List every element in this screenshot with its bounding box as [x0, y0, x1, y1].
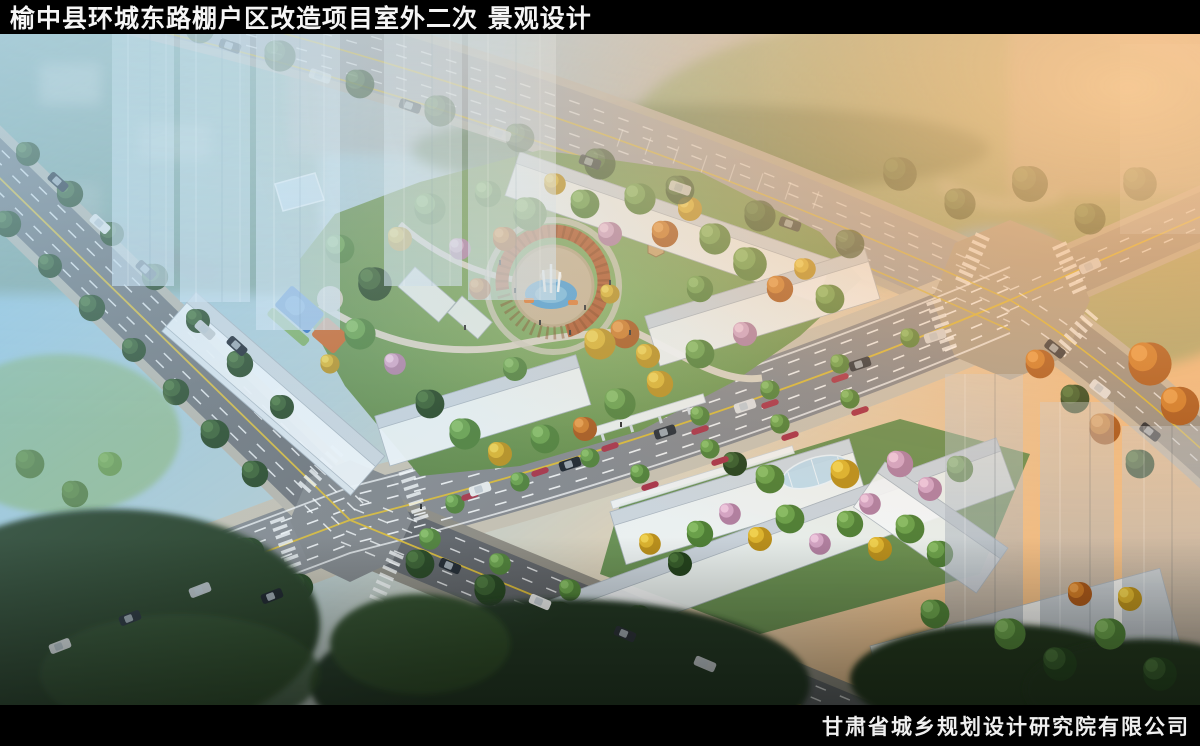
footer-bar: 甘肃省城乡规划设计研究院有限公司 — [0, 705, 1200, 746]
aerial-rendering — [0, 34, 1200, 705]
design-institute-name: 甘肃省城乡规划设计研究院有限公司 — [822, 711, 1190, 741]
presentation-board: 榆中县环城东路棚户区改造项目室外二次 景观设计 — [0, 0, 1200, 746]
atmosphere-overlays — [0, 34, 1200, 705]
title-bar: 榆中县环城东路棚户区改造项目室外二次 景观设计 — [0, 0, 1200, 34]
project-title: 榆中县环城东路棚户区改造项目室外二次 景观设计 — [10, 0, 592, 35]
